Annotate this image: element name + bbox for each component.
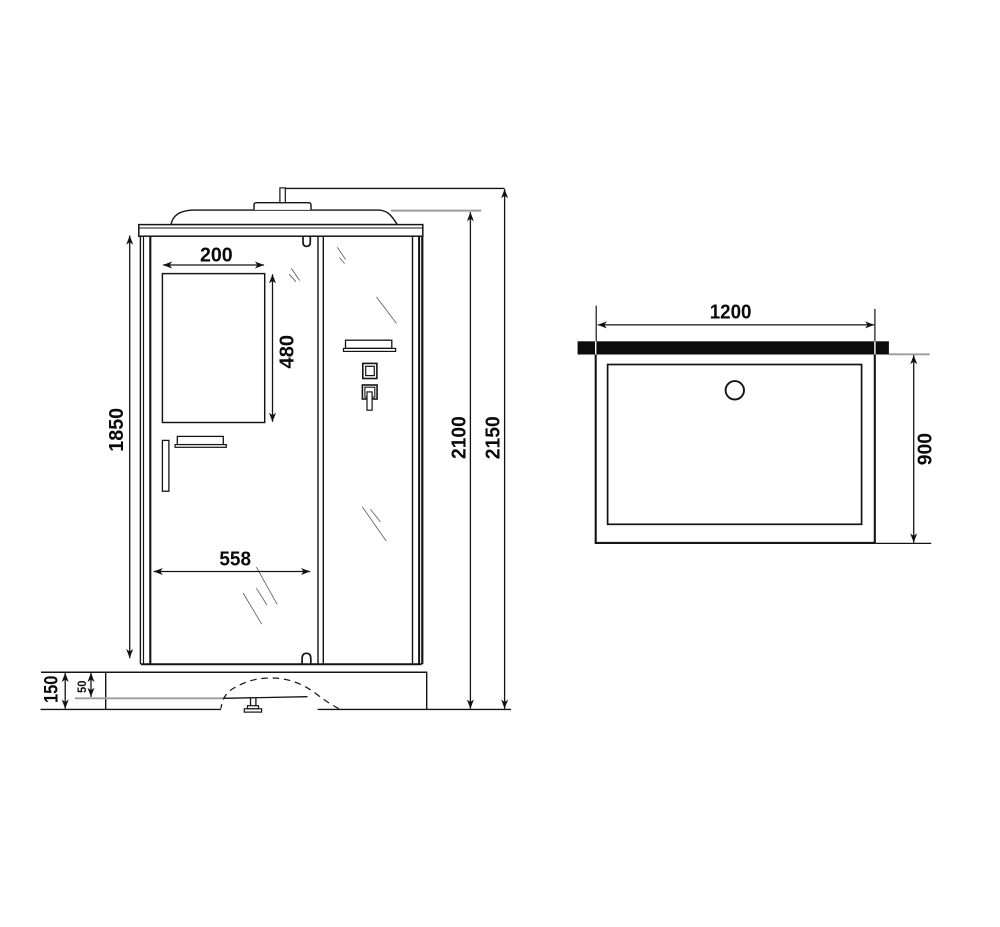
svg-text:50: 50 <box>75 680 89 693</box>
svg-text:2150: 2150 <box>483 416 505 459</box>
svg-text:150: 150 <box>42 676 63 704</box>
svg-text:200: 200 <box>200 245 233 267</box>
svg-text:480: 480 <box>276 335 298 369</box>
svg-text:558: 558 <box>219 549 251 571</box>
svg-text:2100: 2100 <box>449 416 471 459</box>
svg-text:1850: 1850 <box>106 408 128 452</box>
svg-text:900: 900 <box>914 433 936 465</box>
svg-text:1200: 1200 <box>710 302 752 324</box>
